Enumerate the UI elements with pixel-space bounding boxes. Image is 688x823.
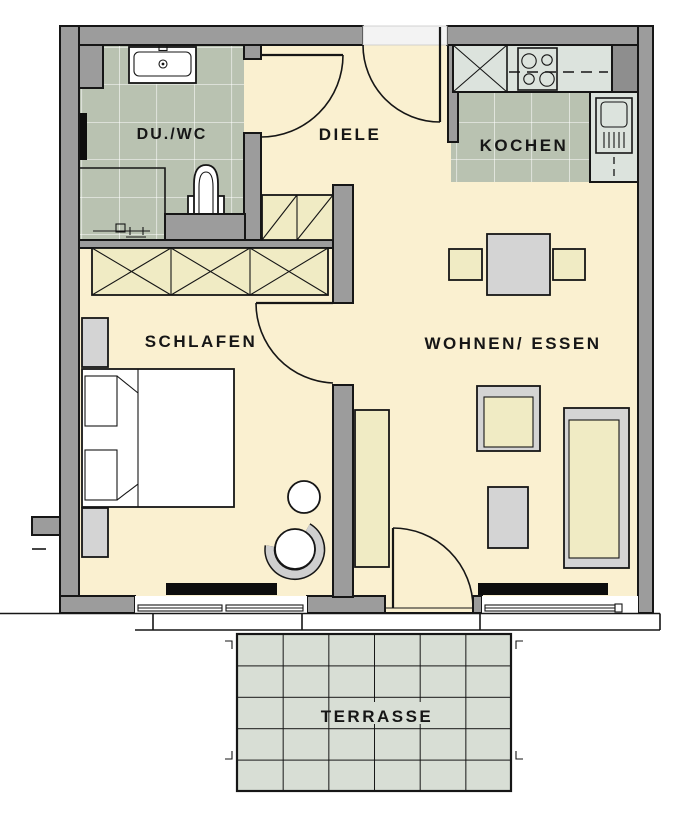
living-sill-bar bbox=[478, 583, 608, 595]
bedroom-window bbox=[135, 596, 307, 613]
armchair bbox=[477, 386, 540, 451]
room-label-terrasse: TERRASSE bbox=[321, 707, 434, 726]
bath-east-wall bbox=[244, 133, 261, 248]
bath-door-jamb bbox=[244, 45, 261, 59]
hall-cabinet bbox=[262, 195, 333, 240]
sofa bbox=[564, 408, 629, 568]
bedroom-sill-bar bbox=[166, 583, 277, 595]
hall-partition bbox=[333, 185, 353, 303]
wall-left bbox=[60, 26, 79, 613]
nightstand-bottom bbox=[82, 508, 108, 557]
room-label-kochen: KOCHEN bbox=[480, 136, 569, 155]
dining-chair-right bbox=[553, 249, 585, 280]
wall-bottom-1 bbox=[60, 596, 135, 613]
nightstand-top bbox=[82, 318, 108, 367]
room-label-wohnen: WOHNEN/ ESSEN bbox=[424, 334, 601, 353]
stool bbox=[288, 481, 320, 513]
living-window bbox=[482, 596, 638, 613]
bedroom-living-wall bbox=[333, 385, 353, 597]
bath-corner-pier bbox=[79, 45, 103, 88]
counter-end-pier bbox=[612, 45, 638, 92]
wardrobe bbox=[92, 248, 328, 295]
sideboard bbox=[355, 410, 389, 567]
coffee-table bbox=[488, 487, 528, 548]
room-label-diele: DIELE bbox=[319, 125, 382, 144]
wall-top-right bbox=[447, 26, 653, 45]
dining-table bbox=[487, 234, 550, 295]
bedroom-north-wall bbox=[79, 240, 333, 248]
entrance-threshold bbox=[363, 26, 447, 45]
wall-left-pier bbox=[32, 517, 60, 535]
wall-top-left bbox=[60, 26, 363, 45]
wall-bottom-2 bbox=[307, 596, 385, 613]
dining-chair-left bbox=[449, 249, 482, 280]
room-label-duwc: DU./WC bbox=[137, 126, 208, 143]
wall-right bbox=[638, 26, 653, 613]
floor-plan-drawing: DU./WC DIELE KOCHEN SCHLAFEN WOHNEN/ ESS… bbox=[0, 0, 688, 823]
radiator bbox=[80, 113, 87, 160]
double-bed bbox=[82, 369, 234, 507]
room-label-schlafen: SCHLAFEN bbox=[145, 332, 258, 351]
floor-plan-page: DU./WC DIELE KOCHEN SCHLAFEN WOHNEN/ ESS… bbox=[0, 0, 688, 823]
kitchen-sink-unit bbox=[590, 92, 638, 182]
terrace-door-threshold bbox=[385, 596, 473, 613]
kitchen-counter bbox=[453, 45, 638, 92]
window-mullion bbox=[473, 596, 482, 613]
washbasin bbox=[129, 46, 196, 84]
